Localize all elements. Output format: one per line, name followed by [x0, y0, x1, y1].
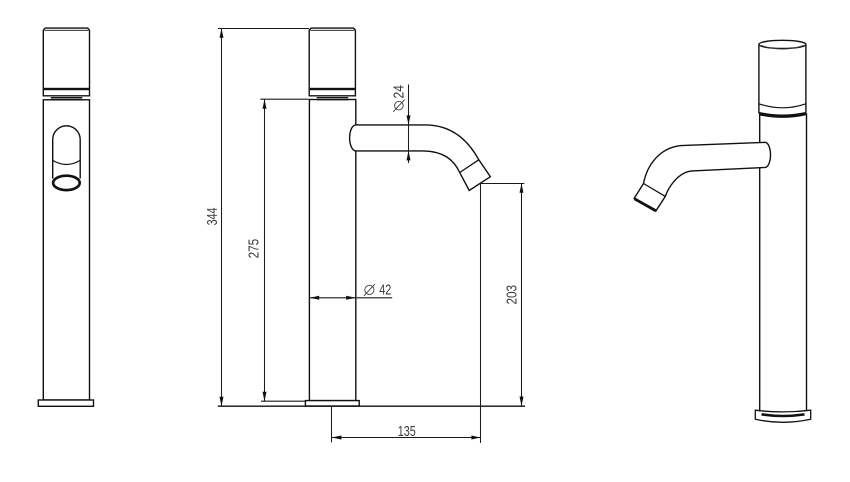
svg-text:24: 24: [392, 85, 408, 98]
svg-text:344: 344: [205, 208, 221, 226]
svg-text:275: 275: [247, 239, 263, 259]
svg-text:42: 42: [379, 283, 391, 299]
svg-text:135: 135: [398, 424, 416, 440]
svg-text:203: 203: [505, 285, 521, 305]
